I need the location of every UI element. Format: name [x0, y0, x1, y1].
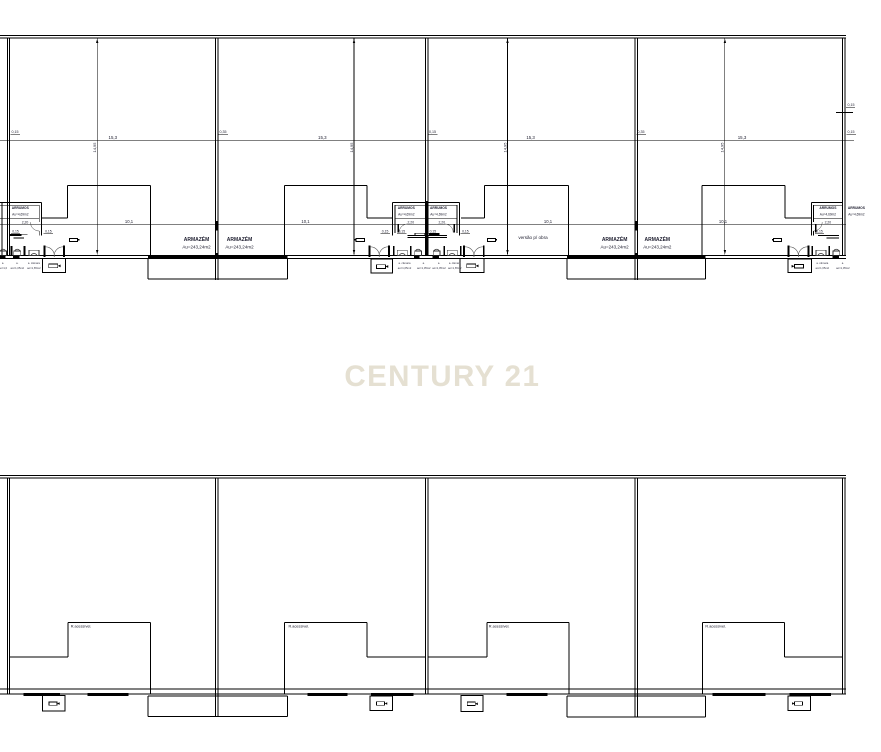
svg-text:a.: a.	[2, 262, 4, 265]
svg-text:14,95: 14,95	[502, 142, 507, 153]
svg-text:ARRUMOS: ARRUMOS	[819, 206, 837, 210]
svg-text:Au=243,24m2: Au=243,24m2	[601, 244, 630, 249]
svg-text:0,35: 0,35	[638, 130, 645, 134]
svg-text:15,3: 15,3	[109, 135, 118, 140]
svg-text:Au=4,69m2: Au=4,69m2	[398, 213, 415, 217]
svg-text:versão p/ obra: versão p/ obra	[518, 235, 548, 240]
svg-text:0,15: 0,15	[848, 103, 855, 107]
svg-text:R.acessível.: R.acessível.	[489, 625, 510, 629]
svg-text:CENTURY 21: CENTURY 21	[344, 360, 539, 393]
svg-text:14,95: 14,95	[349, 142, 354, 153]
svg-text:a.: a.	[16, 262, 18, 265]
svg-text:15,3: 15,3	[318, 135, 327, 140]
svg-text:0,15: 0,15	[430, 229, 437, 233]
svg-text:ao=1,05m2: ao=1,05m2	[11, 266, 25, 270]
svg-text:0,35: 0,35	[220, 130, 227, 134]
svg-text:ao=1,65m2: ao=1,65m2	[398, 266, 412, 270]
svg-text:R.acessível.: R.acessível.	[289, 625, 310, 629]
svg-text:ao=1,05m2: ao=1,05m2	[836, 266, 850, 270]
svg-text:ao=1,65m2: ao=1,65m2	[27, 266, 41, 270]
svg-text:0,15: 0,15	[816, 229, 823, 233]
svg-text:2,20: 2,20	[407, 221, 414, 225]
svg-text:14,95: 14,95	[720, 142, 725, 153]
svg-text:a.: a.	[438, 262, 440, 265]
svg-text:0,15: 0,15	[45, 229, 52, 233]
svg-text:0,15: 0,15	[462, 229, 469, 233]
svg-text:ARRUMOS: ARRUMOS	[430, 206, 448, 210]
svg-text:ao=1,0: ao=1,0	[0, 266, 8, 270]
svg-text:Au=4,69m2: Au=4,69m2	[848, 213, 865, 217]
svg-text:0,15: 0,15	[398, 229, 405, 233]
svg-text:a.: a.	[842, 262, 844, 265]
svg-text:10,1: 10,1	[719, 219, 728, 224]
svg-text:a. câmara: a. câmara	[449, 261, 461, 265]
svg-text:ARMAZÉM: ARMAZÉM	[645, 235, 671, 243]
svg-text:ao=1,65m2: ao=1,65m2	[816, 266, 830, 270]
svg-text:10,1: 10,1	[301, 219, 310, 224]
svg-text:Au=4,69m2: Au=4,69m2	[430, 213, 447, 217]
svg-text:ao=1,05m2: ao=1,05m2	[417, 266, 431, 270]
svg-text:ARRUMOS: ARRUMOS	[12, 206, 30, 210]
svg-text:0,15: 0,15	[12, 229, 19, 233]
svg-text:0,15: 0,15	[12, 130, 19, 134]
svg-text:15,3: 15,3	[526, 135, 535, 140]
svg-text:0,15: 0,15	[429, 130, 436, 134]
svg-text:ao=1,65m2: ao=1,65m2	[448, 266, 462, 270]
svg-text:Au=243,24m2: Au=243,24m2	[225, 244, 254, 249]
svg-text:Au=243,24m2: Au=243,24m2	[643, 244, 672, 249]
svg-text:R.acessível.: R.acessível.	[71, 625, 92, 629]
svg-text:0,15: 0,15	[848, 130, 855, 134]
svg-text:a. câmara: a. câmara	[28, 261, 40, 265]
svg-text:R.acessível.: R.acessível.	[705, 625, 726, 629]
svg-text:10,1: 10,1	[544, 219, 553, 224]
svg-text:15,3: 15,3	[738, 135, 747, 140]
svg-text:a. câmara: a. câmara	[399, 261, 411, 265]
svg-text:ARMAZÉM: ARMAZÉM	[602, 235, 628, 243]
svg-text:2,20: 2,20	[438, 221, 445, 225]
svg-text:10,1: 10,1	[125, 219, 134, 224]
svg-text:2,20: 2,20	[22, 221, 29, 225]
svg-text:ARRUMOS: ARRUMOS	[398, 206, 416, 210]
svg-text:Au=4,69m2: Au=4,69m2	[820, 213, 837, 217]
svg-text:ARMAZÉM: ARMAZÉM	[227, 235, 253, 243]
svg-text:2,20: 2,20	[825, 221, 832, 225]
svg-text:0,15: 0,15	[382, 229, 389, 233]
svg-text:Au=243,24m2: Au=243,24m2	[182, 244, 211, 249]
svg-text:Au=4,69m2: Au=4,69m2	[12, 213, 29, 217]
svg-text:ao=1,05m2: ao=1,05m2	[432, 266, 446, 270]
svg-text:a.: a.	[423, 262, 425, 265]
svg-text:ARRUMOS: ARRUMOS	[848, 206, 866, 210]
svg-text:14,95: 14,95	[92, 142, 97, 153]
svg-text:a. câmara: a. câmara	[816, 261, 828, 265]
svg-text:ARMAZÉM: ARMAZÉM	[184, 235, 210, 243]
